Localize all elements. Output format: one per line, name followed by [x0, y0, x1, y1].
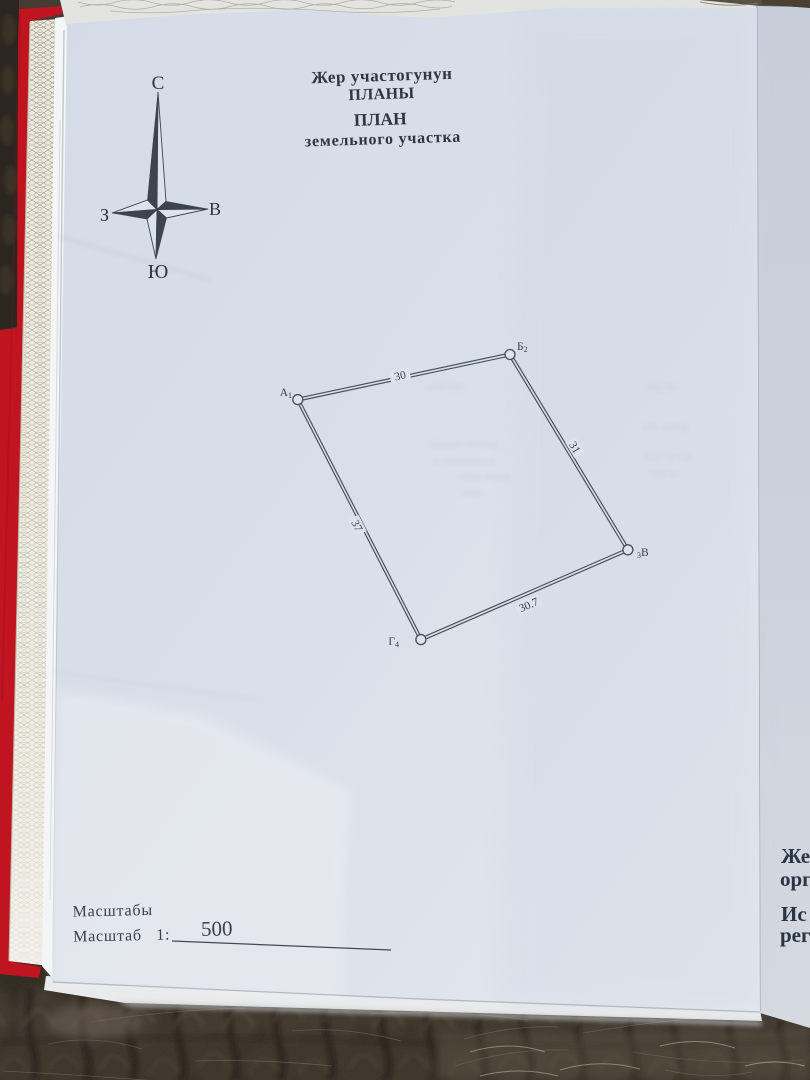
- svg-text:Масштаб 1:: Масштаб 1:: [73, 927, 171, 946]
- svg-text:С: С: [152, 73, 165, 94]
- svg-text:нишц медиа: нишц медиа: [458, 471, 510, 482]
- svg-text:нмо акпюр: нмо акпюр: [642, 422, 688, 433]
- svg-text:Ю: Ю: [148, 261, 169, 283]
- svg-text:Же: Же: [781, 844, 810, 868]
- svg-text:шпорлм итмпвд: шпорлм итмпвд: [430, 439, 498, 450]
- svg-text:ПЛАН: ПЛАН: [354, 108, 408, 130]
- svg-text:ПЛАНЫ: ПЛАНЫ: [348, 85, 415, 104]
- svg-text:мангпр пар: мангпр пар: [644, 452, 692, 463]
- svg-text:нмп ммо: нмп ммо: [428, 382, 465, 393]
- svg-text:Масштабы: Масштабы: [72, 902, 153, 921]
- svg-text:В: В: [209, 199, 221, 219]
- svg-text:камч: камч: [462, 488, 483, 499]
- svg-text:рег: рег: [780, 923, 810, 947]
- svg-text:тмн по: тмн по: [650, 469, 679, 480]
- svg-text:нг иприодноси: нг иприодноси: [432, 456, 496, 467]
- svg-text:З: З: [100, 205, 109, 225]
- svg-text:500: 500: [201, 916, 233, 941]
- svg-text:орг: орг: [780, 867, 810, 891]
- svg-text:нмц пю: нмц пю: [645, 382, 678, 393]
